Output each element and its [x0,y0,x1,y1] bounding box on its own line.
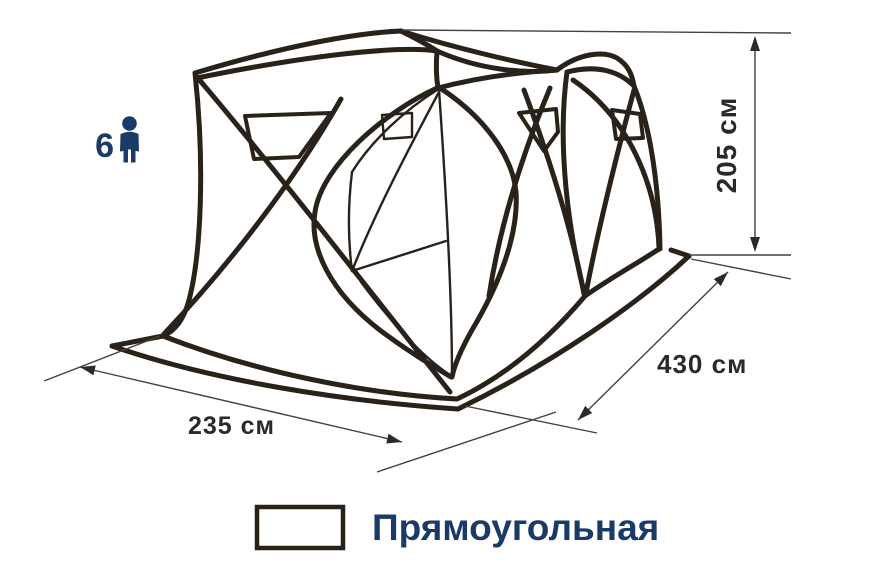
tent-outline-drawing [112,31,689,409]
width-dimension-label: 235 см [188,412,275,440]
diagram-canvas: 6 205 см 430 см 235 см Прямоугольная [0,0,875,583]
door-inner-curve-2 [352,90,437,172]
height-dimension-label: 205 см [711,97,742,194]
door-center-seam [439,90,452,376]
tent-diagram: 6 205 см 430 см 235 см Прямоугольная [0,0,875,583]
tent-hem [163,249,659,399]
legend: Прямоугольная [257,507,659,548]
height-dimension: 205 см [402,30,791,255]
rectangle-icon [257,507,343,548]
legend-label: Прямоугольная [372,507,659,548]
arrow-downright-icon [386,434,403,447]
door-inner-curve-3 [349,172,352,271]
arrow-down-icon [750,237,760,252]
door-apex-to-valley [438,70,557,88]
center-seam [563,72,585,296]
depth-extension-near [465,406,597,433]
depth-dimension-label: 430 см [657,349,747,379]
capacity-count: 6 [95,127,114,165]
depth-extension-far [691,259,791,279]
person-icon [120,116,139,162]
capacity-indicator: 6 [95,116,139,165]
width-dimension: 235 см [44,336,556,472]
door-inner-curve-1 [352,92,439,271]
arrow-up-icon [750,36,760,51]
skirt-right-cap [671,250,689,256]
depth-dimension-line [578,272,728,420]
mid-face-brace-2 [489,88,550,296]
height-extension-top [402,30,791,33]
door-inner-diagonal [352,241,446,271]
right-face-brace-2 [586,90,634,293]
door-apex-link [436,51,438,88]
width-extension-right [377,412,556,472]
depth-dimension: 430 см [465,259,791,433]
